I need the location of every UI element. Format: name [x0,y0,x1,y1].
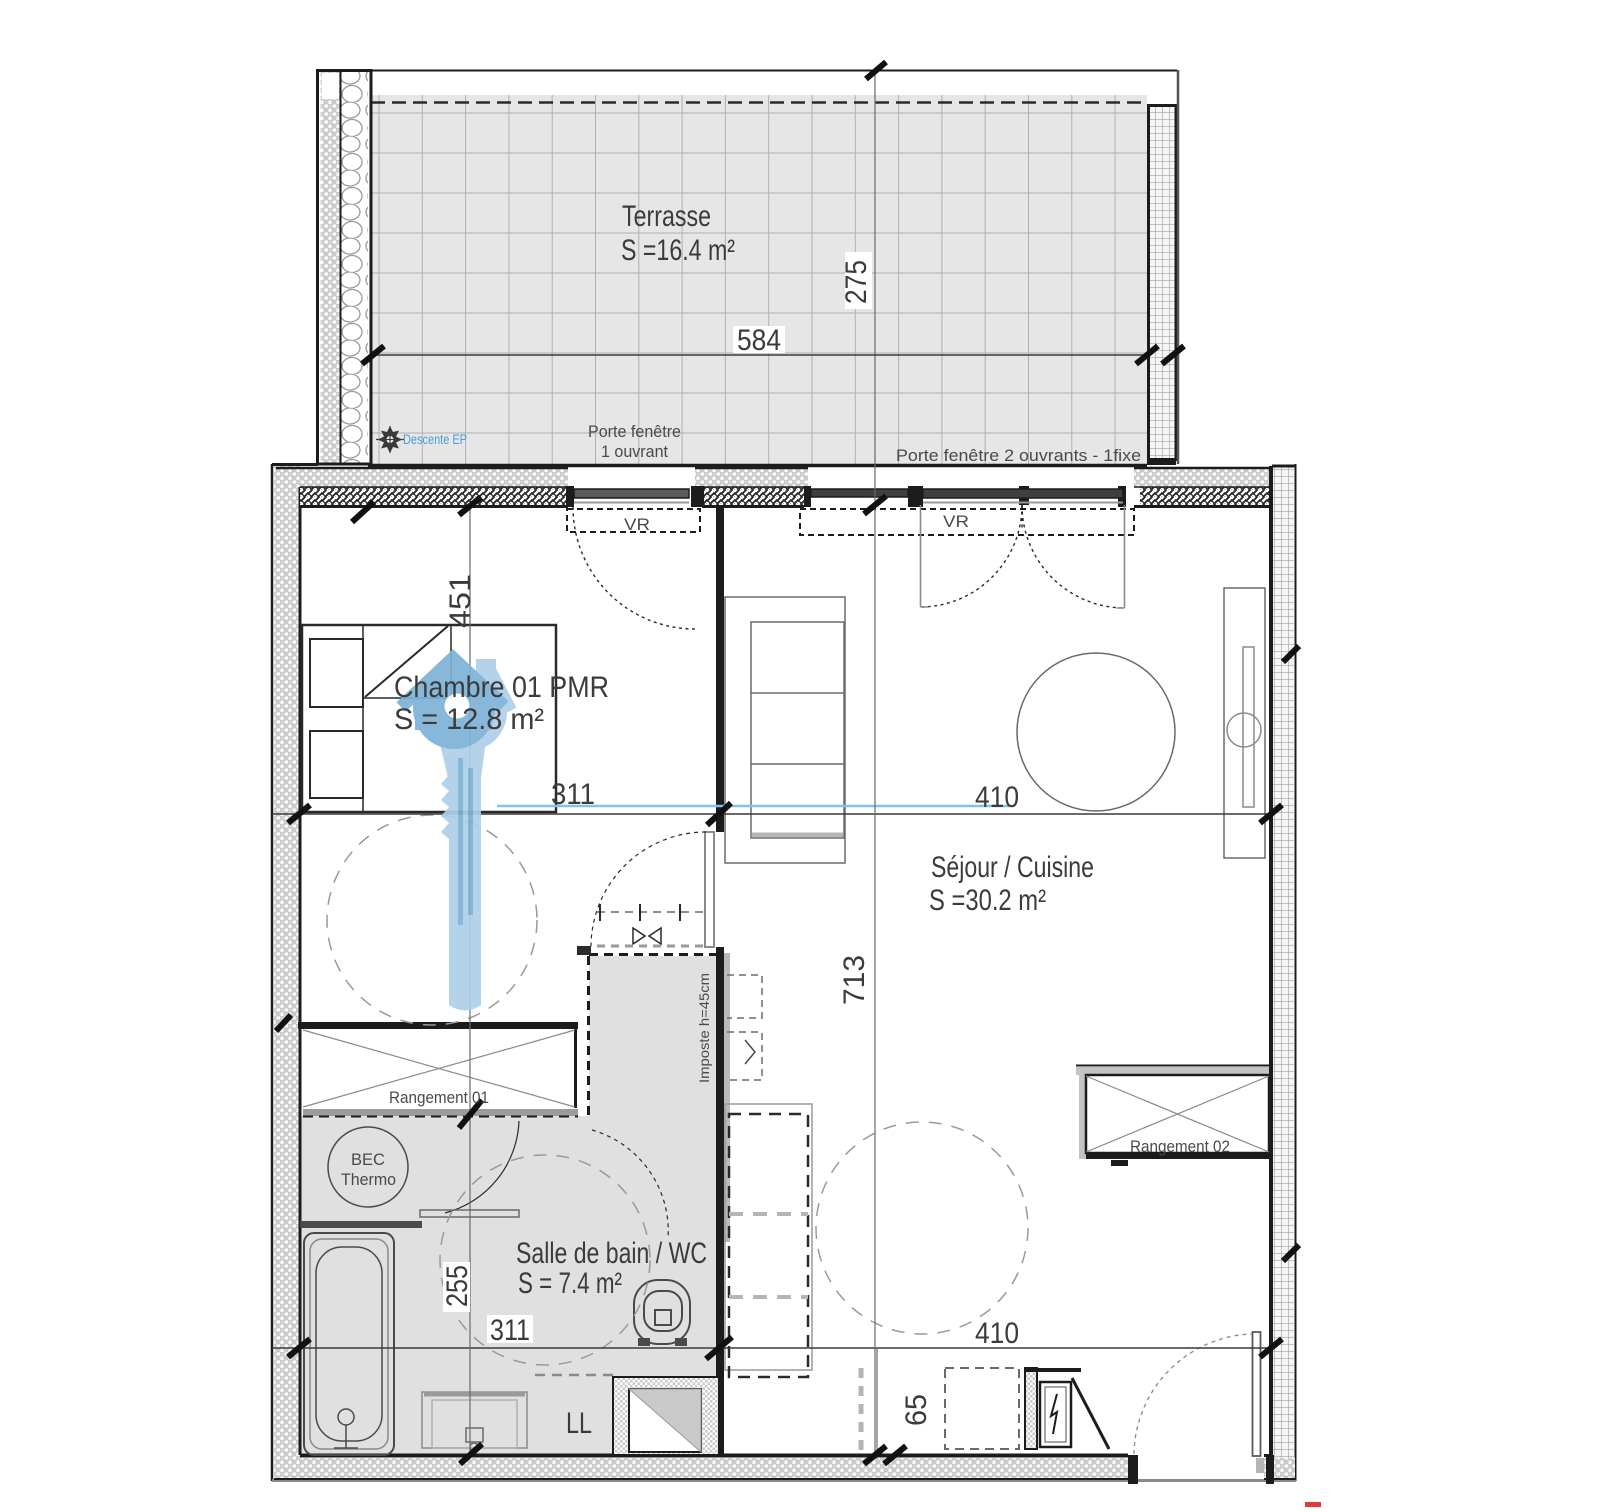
svg-text:Salle de bain / WC: Salle de bain / WC [516,1237,707,1270]
svg-text:65: 65 [900,1394,933,1426]
svg-text:BEC: BEC [351,1150,385,1169]
svg-text:Rangement 02: Rangement 02 [1130,1137,1230,1156]
svg-text:LL: LL [566,1407,592,1440]
svg-text:Rangement 01: Rangement 01 [389,1088,489,1107]
svg-text:S = 12.8 m²: S = 12.8 m² [394,703,544,736]
svg-text:311: 311 [551,778,595,811]
svg-text:410: 410 [975,781,1019,814]
svg-text:Terrasse: Terrasse [622,200,711,233]
svg-text:584: 584 [737,324,781,357]
svg-text:VR: VR [624,515,650,534]
svg-text:S =30.2 m²: S =30.2 m² [929,884,1046,917]
svg-text:Porte fenêtre: Porte fenêtre [588,422,681,441]
svg-text:451: 451 [444,574,477,628]
svg-text:Chambre 01 PMR: Chambre 01 PMR [394,671,609,704]
svg-text:275: 275 [840,260,873,304]
svg-text:S =16.4 m²: S =16.4 m² [621,234,735,267]
svg-text:VR: VR [943,512,969,531]
svg-text:1 ouvrant: 1 ouvrant [601,442,668,461]
svg-text:Descente EP: Descente EP [403,432,467,447]
svg-text:Séjour / Cuisine: Séjour / Cuisine [931,851,1094,884]
svg-text:Imposte h=45cm: Imposte h=45cm [696,973,712,1083]
svg-text:Porte fenêtre 2 ouvrants - 1fi: Porte fenêtre 2 ouvrants - 1fixe [896,446,1141,465]
svg-text:410: 410 [975,1317,1019,1350]
svg-text:S = 7.4 m²: S = 7.4 m² [518,1267,622,1300]
svg-text:Thermo: Thermo [341,1170,396,1189]
svg-text:311: 311 [490,1314,530,1347]
svg-text:713: 713 [838,955,871,1005]
svg-text:255: 255 [441,1265,474,1307]
